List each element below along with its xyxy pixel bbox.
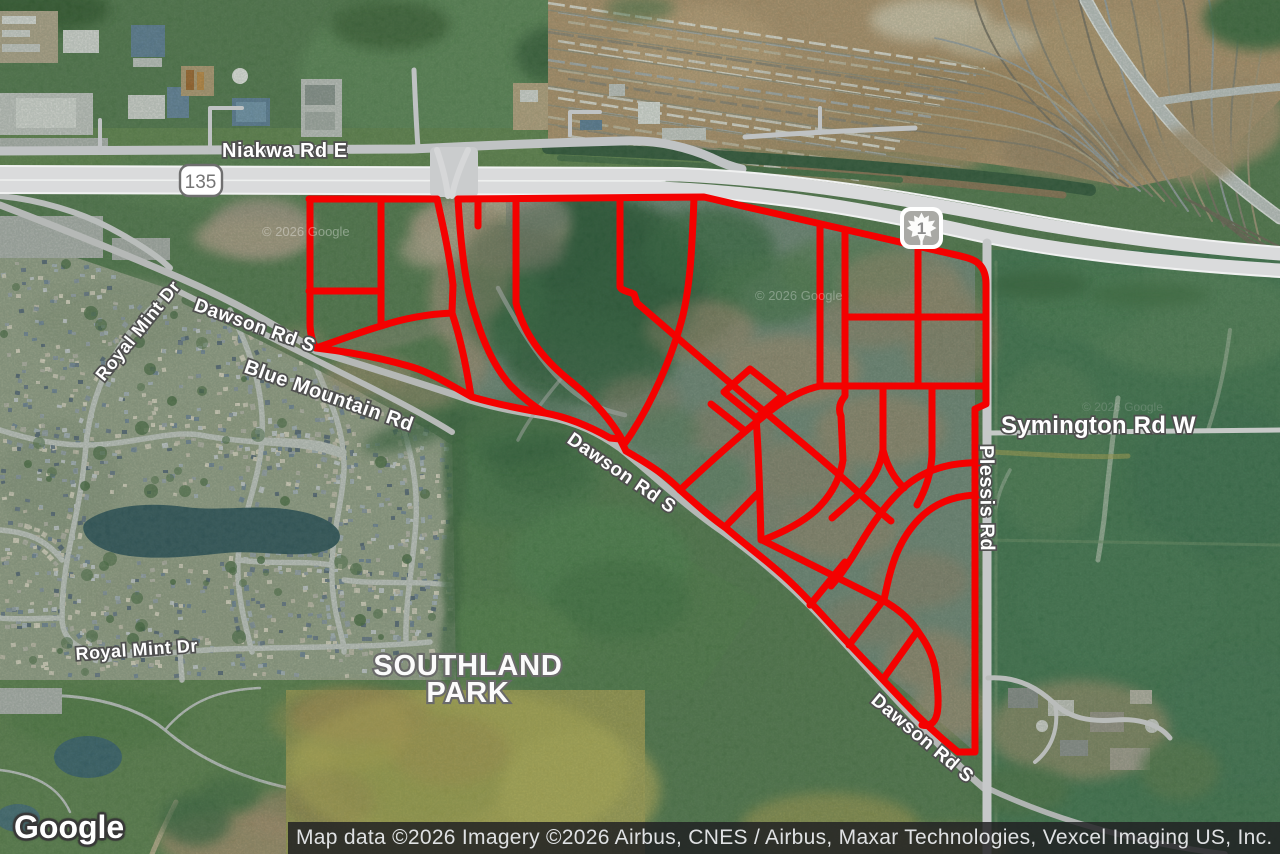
svg-text:© 2026 Google: © 2026 Google — [1082, 400, 1163, 414]
svg-text:135: 135 — [185, 172, 217, 193]
svg-text:Symington Rd W: Symington Rd W — [1001, 412, 1196, 439]
svg-text:Plessis Rd: Plessis Rd — [975, 445, 998, 551]
svg-text:PARK: PARK — [426, 677, 509, 709]
svg-text:© 2026 Google: © 2026 Google — [262, 224, 350, 239]
svg-text:1: 1 — [917, 219, 926, 238]
svg-text:Niakwa Rd E: Niakwa Rd E — [222, 140, 348, 162]
svg-text:© 2026 Google: © 2026 Google — [755, 288, 843, 303]
